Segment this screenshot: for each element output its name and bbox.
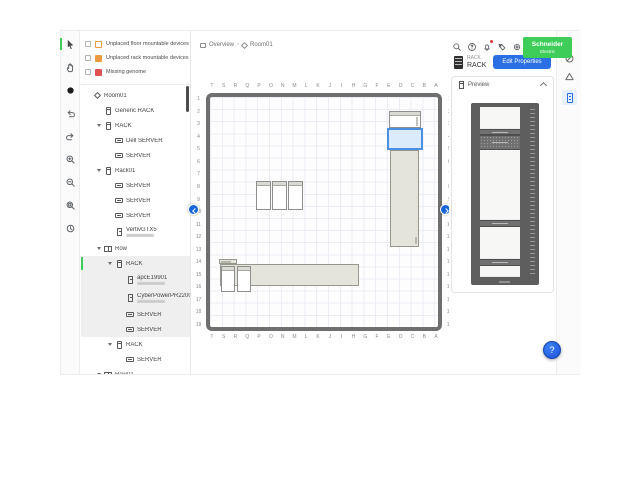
grid-label: O [265,334,277,341]
row-icon [103,370,113,375]
tree-item[interactable]: Row [81,241,190,256]
rack-unit-device[interactable] [480,220,520,227]
grid-label: 14 [194,256,203,269]
tree-item[interactable]: SERVER [81,193,190,208]
floor-rack[interactable] [288,181,303,210]
grid-label: 7 [194,168,203,181]
tree-item[interactable]: SERVER [81,148,190,163]
col-labels-top: TSRQPONMLKJIHGFEDCBA [206,83,442,90]
search-icon[interactable] [451,41,462,52]
pan-tool[interactable] [63,60,77,74]
tree-item-label: SERVER [126,183,151,189]
tree-item[interactable]: Row01 [81,367,190,374]
tree-item[interactable]: RACK [81,118,190,133]
rack-label-smudge [416,117,418,126]
rack-unit-device[interactable] [480,259,520,266]
tree-item-label: Dell SERVER [126,138,163,144]
grid-label: A [430,334,442,341]
grid-label: H [348,83,360,90]
rack-unit-empty [480,107,520,129]
floor-row-vertical[interactable] [390,150,419,247]
collapse-preview-chevron[interactable] [540,81,547,88]
grid-label: S [218,334,230,341]
chevron-down-icon[interactable] [96,371,103,374]
breadcrumb: Overview › Room01 [200,42,273,48]
grid-label: M [289,334,301,341]
preview-card: Preview [451,76,554,293]
chevron-down-icon[interactable] [96,167,103,174]
grid-label: 3 [194,118,203,131]
chevron-down-icon[interactable] [107,260,114,267]
grid-label: D [395,334,407,341]
properties-panel: RACK RACK Edit Properties Preview [449,31,556,374]
tree-item-label: Rack01 [115,168,135,174]
floor-rack[interactable] [256,181,271,210]
tree-item[interactable]: Rack01 [81,163,190,178]
grid-label: B [418,334,430,341]
right-tab-strip [556,31,581,374]
grid-label: 1 [194,93,203,106]
zoom-out-button[interactable] [63,175,77,189]
select-tool[interactable] [63,37,77,51]
floor-rack[interactable] [272,181,287,210]
preview-header: Preview [452,77,553,93]
col-labels-bottom: TSRQPONMLKJIHGFEDCBA [206,334,442,341]
grid-label: N [277,334,289,341]
filter-label: Unplaced rack mountable devices [106,55,189,61]
grid-label: N [277,83,289,90]
tree-item-label: SERVER [137,312,162,318]
zoom-in-button[interactable] [63,152,77,166]
rack-icon [567,93,573,103]
feedback-icon[interactable] [496,41,507,52]
grid-label: O [265,83,277,90]
server-icon [114,181,124,191]
breadcrumb-room[interactable]: Room01 [250,42,273,48]
floorplan-canvas[interactable]: Overview › Room01 TSRQPONMLKJIHGFEDCBA 1… [191,31,449,374]
grid-label: 8 [194,181,203,194]
grid-label: R [230,83,242,90]
grid-label: 6 [194,156,203,169]
tree-item-label: SERVER [137,357,162,363]
logo-line1: Schneider [532,41,563,48]
tree-item-label: RACK [126,261,143,267]
checkbox[interactable] [85,55,91,61]
grid-label: S [218,83,230,90]
tree-item-label: RACK [115,123,132,129]
floor-rack-selected[interactable] [387,128,423,150]
rack-icon [114,340,124,350]
grid-label: M [289,83,301,90]
server-icon [114,136,124,146]
app-window: Unplaced floor mountable devicesUnplaced… [60,30,580,375]
server-icon [125,355,135,365]
tree-item-label: Room01 [104,93,127,99]
server-icon [114,196,124,206]
rack-elevation [471,103,539,285]
breadcrumb-overview[interactable]: Overview [209,42,234,48]
rack-unit-empty [480,150,520,220]
tree-item-label: SERVER [137,327,162,333]
tree-item-label: VertivGTX5 [126,227,157,233]
filter-item[interactable]: Unplaced floor mountable devices [81,37,190,51]
grid-label: 4 [194,131,203,144]
grid-label: 16 [194,281,203,294]
grid-label: L [300,334,312,341]
tree-item-label: RACK [126,342,143,348]
tree-item[interactable]: SERVER [81,208,190,223]
grid-label: H [348,334,360,341]
grid-label: F [371,334,383,341]
canvas-toolbar [61,31,80,374]
filter-item[interactable]: Missing genome [81,65,190,79]
room-floor[interactable] [206,93,442,331]
grid-label: J [324,83,336,90]
grid-label: 5 [194,143,203,156]
preview-title: Preview [468,82,489,88]
grid-label: T [206,83,218,90]
redacted-subtitle [137,282,165,285]
rack-unit-empty [480,266,520,277]
server-icon [125,310,135,320]
grid-label: Q [241,83,253,90]
rack-device-icon [95,55,102,62]
tree-item[interactable]: RACK [81,337,190,352]
tree-item[interactable]: Generic RACK [81,103,190,118]
grid-label: 15 [194,268,203,281]
floor-rack[interactable] [389,111,421,128]
redacted-subtitle [126,234,154,237]
help-fab[interactable]: ? [543,341,561,359]
server-icon [125,325,135,335]
breadcrumb-separator: › [237,42,239,48]
logo-line2: Electric [540,48,555,55]
filters-list: Unplaced floor mountable devicesUnplaced… [81,31,190,79]
u-position-ticks [530,109,535,277]
collapse-left-panel-handle[interactable] [188,204,199,215]
notification-badge [489,39,494,44]
device-icon [125,275,135,285]
tree-item-label: CyberPowerPR2200R... [137,293,190,299]
tree-item[interactable]: SERVER [81,352,190,367]
dot-tool[interactable] [63,83,77,97]
grid-label: 17 [194,294,203,307]
tree-item-label: Generic RACK [115,108,154,114]
grid-label: K [312,83,324,90]
grid-label: G [359,83,371,90]
room-icon [92,91,102,101]
grid-label: D [395,83,407,90]
rack-icon [103,121,113,131]
alerts-icon[interactable] [562,69,577,84]
room-icon [241,41,248,48]
floor-device-icon [95,41,102,48]
device-icon [114,227,124,237]
tree-item-label: Row [115,246,127,252]
rack-icon [103,166,113,176]
tree-item-label: SERVER [126,213,151,219]
row-label-smudge [221,261,231,263]
tree-scrollbar[interactable] [186,86,189,112]
floor-rack[interactable] [221,266,235,292]
tree-item[interactable]: SERVER [81,322,190,337]
grid-label: C [407,334,419,341]
grid-label: 12 [194,231,203,244]
tree-item[interactable]: SERVER [81,178,190,193]
overview-icon [200,43,206,48]
server-icon [114,151,124,161]
grid-label: 13 [194,243,203,256]
grid-label: 19 [194,319,203,332]
grid-label: 18 [194,306,203,319]
rack-properties-tab[interactable] [562,90,577,105]
chevron-down-icon[interactable] [96,245,103,252]
filter-label: Unplaced floor mountable devices [106,41,189,47]
divider [81,84,190,85]
tree-item-label: Row01 [115,372,134,375]
grid-label: 2 [194,106,203,119]
device-tree: Room01Generic RACKRACKDell SERVERSERVERR… [81,88,190,374]
rack-icon [103,106,113,116]
floor-rack[interactable] [237,266,251,292]
checkbox[interactable] [85,41,91,47]
rack-icon [459,81,464,89]
grid-label: I [336,83,348,90]
tree-item-label: apcE19901 [137,275,167,281]
rack-icon [114,259,124,269]
grid-label: L [300,83,312,90]
grid-label: E [383,83,395,90]
grid-label: A [430,83,442,90]
missing-genome-icon [95,69,102,76]
grid-label: T [206,334,218,341]
row-label-smudge [415,237,417,244]
grid-label: E [383,334,395,341]
grid-label: F [371,83,383,90]
tree-item[interactable]: CyberPowerPR2200R... [81,289,190,307]
tree-item-label: SERVER [126,153,151,159]
schneider-logo[interactable]: Schneider Electric [523,37,572,58]
grid-label: G [359,334,371,341]
server-icon [114,211,124,221]
tree-item[interactable]: SERVER [81,307,190,322]
grid-label: 11 [194,218,203,231]
filter-label: Missing genome [106,69,146,75]
device-icon [125,293,135,303]
selected-name: RACK [467,62,486,69]
notifications-icon[interactable] [481,41,492,52]
left-panel: Unplaced floor mountable devicesUnplaced… [81,31,191,374]
grid-label: Q [241,334,253,341]
selected-type-label: RACK [467,55,481,61]
tree-item[interactable]: VertivGTX5 [81,223,190,241]
rack-unit-empty [480,227,520,259]
grid-label: I [336,334,348,341]
grid-label: P [253,83,265,90]
history-button[interactable] [63,221,77,235]
tree-item[interactable]: RACK [81,256,190,271]
grid-label: R [230,334,242,341]
rack-thumbnail-icon [454,56,463,69]
tree-item-label: SERVER [126,198,151,204]
fit-view-button[interactable] [63,198,77,212]
grid-label: B [418,83,430,90]
grid-label: K [312,334,324,341]
grid-label: J [324,334,336,341]
rack-opening [480,107,520,277]
tree-item[interactable]: apcE19901 [81,271,190,289]
grid-label: P [253,334,265,341]
settings-icon[interactable] [511,41,522,52]
rack-unit-ports[interactable] [480,135,520,150]
chevron-down-icon[interactable] [107,341,114,348]
row-icon [103,244,113,254]
redo-button[interactable] [63,129,77,143]
filter-item[interactable]: Unplaced rack mountable devices [81,51,190,65]
grid-label: C [407,83,419,90]
chevron-down-icon[interactable] [96,122,103,129]
checkbox[interactable] [85,69,91,75]
tree-item[interactable]: Dell SERVER [81,133,190,148]
tree-item[interactable]: Room01 [81,88,190,103]
redacted-subtitle [137,300,165,303]
undo-button[interactable] [63,106,77,120]
help-icon[interactable] [466,41,477,52]
